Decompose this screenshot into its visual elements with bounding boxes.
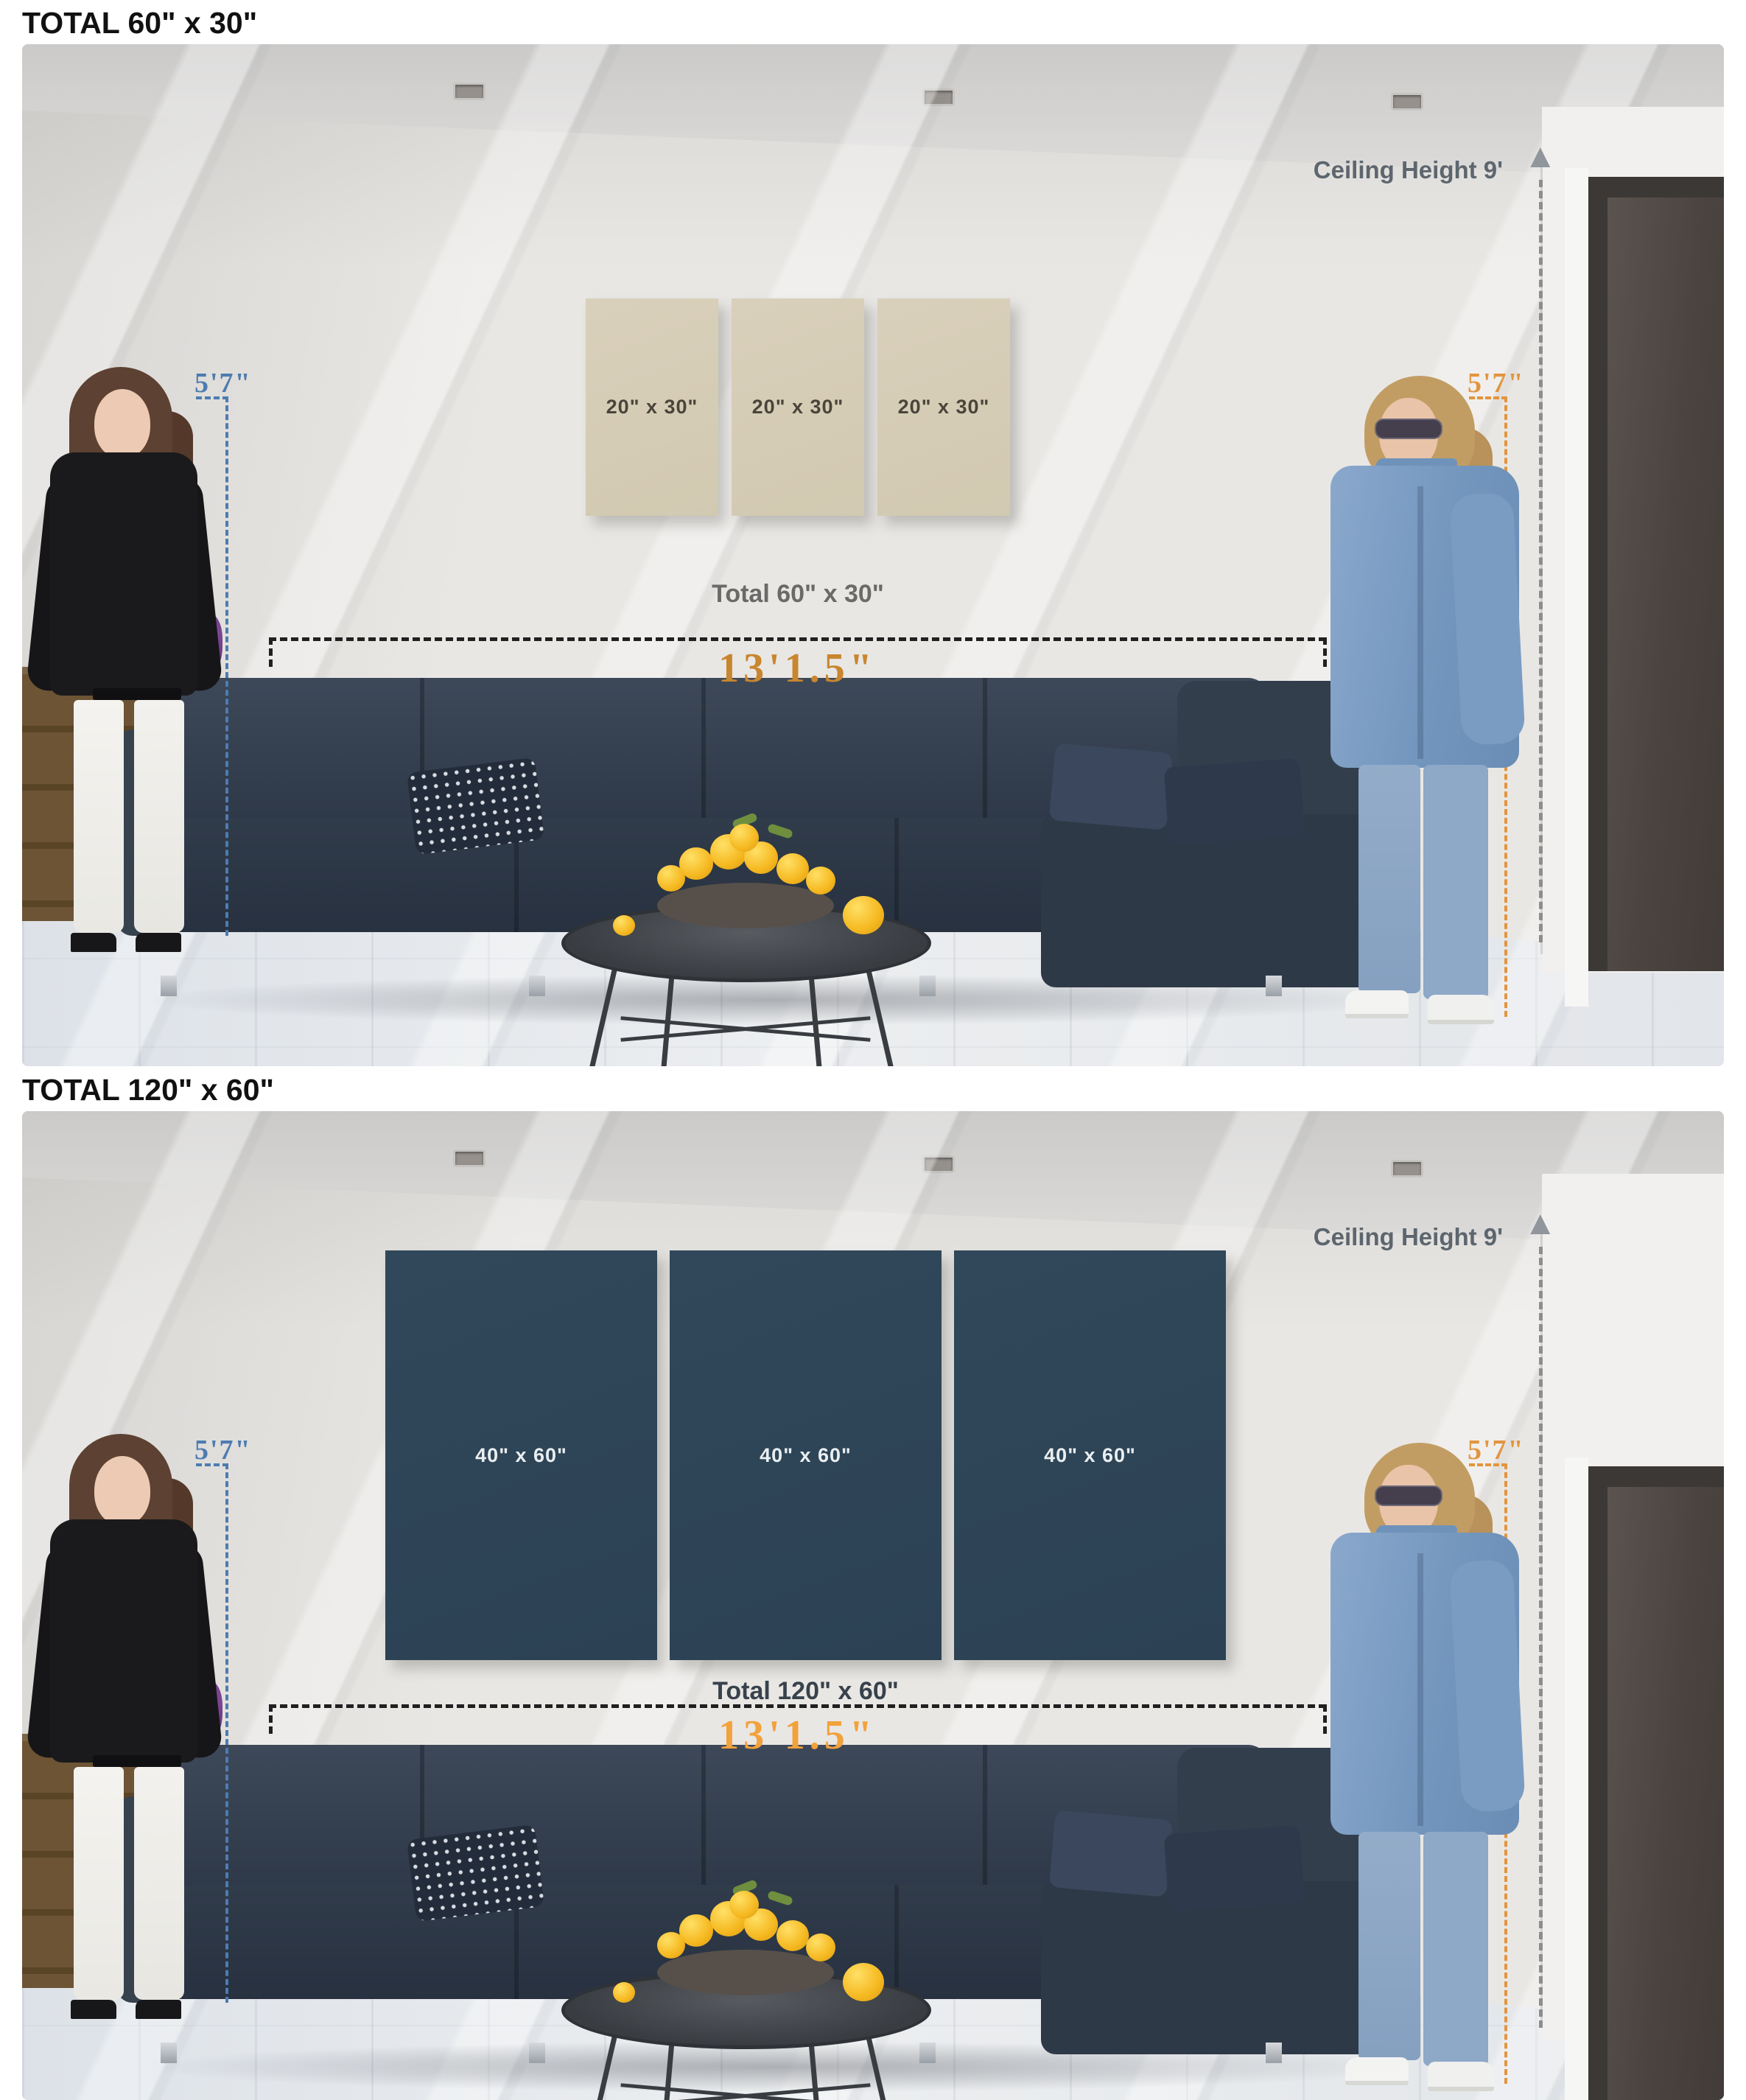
table-leg xyxy=(866,967,899,1066)
canvas-size-label: 20" x 30" xyxy=(606,396,698,419)
sunglasses xyxy=(1375,1485,1442,1506)
sofa-leg xyxy=(529,976,545,996)
coffee-table xyxy=(547,1901,944,2100)
jacket-sleeve xyxy=(1449,492,1526,746)
panel-2-heading: TOTAL 120" x 60" xyxy=(22,1073,274,1107)
up-arrow-icon: ▲ xyxy=(1524,1203,1557,1242)
lemon xyxy=(806,1933,835,1961)
height-line xyxy=(225,396,228,936)
sofa-leg xyxy=(161,976,177,996)
height-line xyxy=(225,1463,228,2003)
sneaker xyxy=(1345,990,1409,1018)
canvas-size-label: 20" x 30" xyxy=(752,396,844,419)
jeans xyxy=(1423,1832,1488,2066)
white-trousers xyxy=(134,700,184,933)
black-blouse xyxy=(50,452,197,696)
pillow xyxy=(1164,1825,1305,1912)
total-size-label: Total 60" x 30" xyxy=(586,580,1010,609)
lemon xyxy=(729,824,759,852)
sofa-leg xyxy=(1266,2043,1282,2063)
ceiling-light-icon xyxy=(922,1155,955,1173)
lemon xyxy=(657,1932,685,1959)
canvas-panel-2: 20" x 30" xyxy=(732,298,864,516)
total-size-label: Total 120" x 60" xyxy=(385,1677,1226,1706)
ceiling-light-icon xyxy=(922,88,955,106)
sofa-width-label: 13'1.5" xyxy=(269,645,1326,692)
shoe xyxy=(136,2000,181,2019)
white-trousers xyxy=(74,1767,124,2000)
canvas-panel-2: 40" x 60" xyxy=(670,1250,942,1660)
ceiling-light-icon xyxy=(453,1149,485,1167)
pillow xyxy=(1049,743,1174,830)
coffee-table xyxy=(547,834,944,1066)
shoe xyxy=(136,933,181,952)
sunglasses xyxy=(1375,419,1442,439)
room-scene-large-canvases: 40" x 60" 40" x 60" 40" x 60" Total 120"… xyxy=(22,1111,1724,2100)
ceiling-height-label: Ceiling Height 9' xyxy=(1171,1223,1503,1251)
lemon xyxy=(776,1920,809,1951)
jeans xyxy=(1423,765,1488,999)
ceiling-light-icon xyxy=(1391,93,1423,111)
white-trousers xyxy=(134,1767,184,2000)
up-arrow-icon: ▲ xyxy=(1524,136,1557,175)
sofa-width-line xyxy=(269,1704,1326,1708)
jeans xyxy=(1358,1832,1420,2060)
room-scene-small-canvases: 20" x 30" 20" x 30" 20" x 30" Total 60" … xyxy=(22,44,1724,1066)
ceiling-height-label: Ceiling Height 9' xyxy=(1171,156,1503,184)
canvas-size-label: 40" x 60" xyxy=(475,1444,567,1467)
lemon xyxy=(843,896,884,934)
polka-dot-pillow xyxy=(407,1824,544,1922)
canvas-set: 20" x 30" 20" x 30" 20" x 30" xyxy=(586,298,1010,516)
ceiling-light-icon xyxy=(453,83,485,100)
sofa-leg xyxy=(529,2043,545,2063)
sofa-leg xyxy=(161,2043,177,2063)
jacket-seam xyxy=(1417,1553,1423,1826)
door xyxy=(1588,177,1724,971)
polka-dot-pillow xyxy=(407,757,544,855)
belt xyxy=(93,688,181,700)
person-left xyxy=(31,367,222,964)
pillow xyxy=(1164,758,1305,845)
door-leaf xyxy=(1607,197,1724,971)
lemon xyxy=(729,1891,759,1919)
fruit-bowl xyxy=(657,883,834,928)
canvas-panel-1: 20" x 30" xyxy=(586,298,718,516)
lemon xyxy=(613,915,635,936)
sofa-width-label: 13'1.5" xyxy=(269,1712,1326,1759)
white-trousers xyxy=(74,700,124,933)
table-leg xyxy=(866,2034,899,2100)
jacket-sleeve xyxy=(1449,1559,1526,1813)
sofa-width-line xyxy=(269,637,1326,641)
lemon xyxy=(776,853,809,884)
lemon xyxy=(806,867,835,895)
canvas-panel-3: 20" x 30" xyxy=(877,298,1010,516)
sneaker xyxy=(1428,2062,1494,2091)
fruit-bowl xyxy=(657,1950,834,1995)
jacket-seam xyxy=(1417,486,1423,759)
door-leaf xyxy=(1607,1487,1724,2100)
shoe xyxy=(71,933,116,952)
ceiling-light-icon xyxy=(1391,1160,1423,1177)
door xyxy=(1588,1466,1724,2100)
canvas-set: 40" x 60" 40" x 60" 40" x 60" xyxy=(385,1250,1226,1660)
canvas-panel-3: 40" x 60" xyxy=(954,1250,1226,1660)
lemon xyxy=(843,1963,884,2001)
panel-1-heading: TOTAL 60" x 30" xyxy=(22,6,257,41)
canvas-size-label: 40" x 60" xyxy=(1044,1444,1136,1467)
person-right xyxy=(1311,376,1569,1024)
table-leg xyxy=(808,967,824,1066)
lemon xyxy=(613,1982,635,2003)
belt xyxy=(93,1755,181,1767)
sneaker xyxy=(1428,995,1494,1024)
face xyxy=(94,389,150,458)
person-right xyxy=(1311,1443,1569,2091)
sneaker xyxy=(1345,2057,1409,2085)
sofa-leg xyxy=(1266,976,1282,996)
table-leg xyxy=(584,967,617,1066)
face xyxy=(94,1456,150,1525)
table-leg xyxy=(584,2034,617,2100)
black-blouse xyxy=(50,1519,197,1763)
pillow xyxy=(1049,1810,1174,1897)
canvas-panel-1: 40" x 60" xyxy=(385,1250,657,1660)
table-leg xyxy=(659,967,676,1066)
shoe xyxy=(71,2000,116,2019)
canvas-size-label: 40" x 60" xyxy=(760,1444,852,1467)
person-left xyxy=(31,1434,222,2031)
lemon xyxy=(657,865,685,892)
jeans xyxy=(1358,765,1420,993)
canvas-size-label: 20" x 30" xyxy=(898,396,990,419)
